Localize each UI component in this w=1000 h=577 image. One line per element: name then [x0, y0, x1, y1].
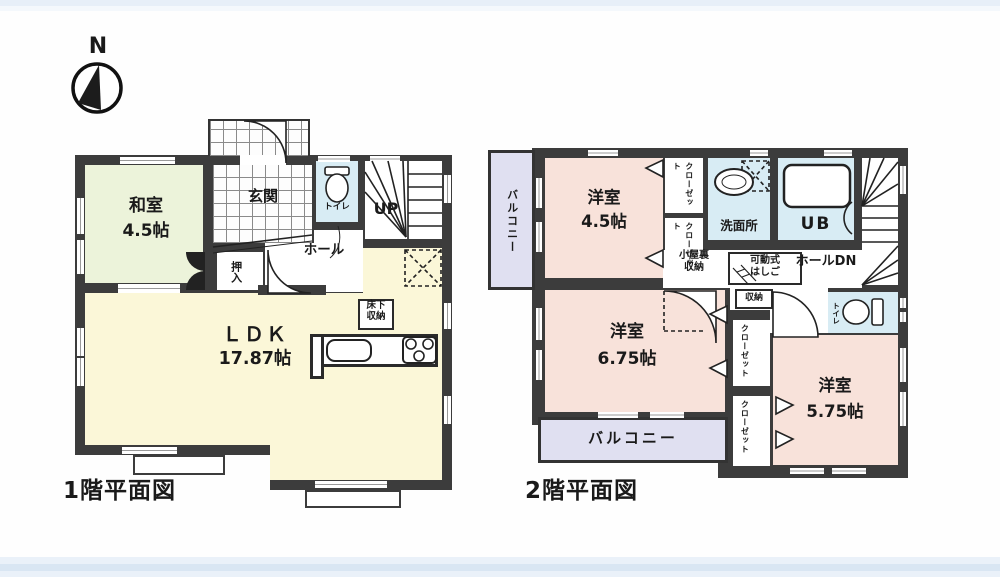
f1-genkan-label: 玄関: [228, 188, 298, 205]
f2-window-675-bottom-2: [650, 412, 684, 418]
f2-koyaura-line2: 収納: [684, 262, 704, 273]
f2-ub-label: UB: [794, 215, 838, 235]
f2-closet-c-col2: ゼット: [740, 351, 749, 378]
f1-entrance-porch: [208, 119, 310, 156]
f2-closet-a-label: クローゼット: [670, 162, 695, 210]
f1-kitchen-counter: [310, 334, 438, 367]
f2-window-575-bottom-1: [790, 468, 824, 474]
f2-window-left-1: [536, 178, 542, 208]
scan-band-top2: [0, 6, 1000, 11]
f1-stairs-up-label: UP: [367, 200, 405, 218]
scan-band-bottom2: [0, 564, 1000, 571]
f2-closet-c-label: クローゼット: [738, 324, 750, 382]
f2-room575-size: 5.75帖: [794, 403, 876, 422]
f1-ldk-name: ＬＤＫ: [190, 323, 320, 346]
f1-window-bottom-right: [315, 481, 387, 488]
f2-window-stairs-right: [900, 166, 906, 194]
f2-window-675-bottom-1: [598, 412, 638, 418]
f2-closet-a-col1: クロー: [685, 162, 694, 189]
f1-hall-label: ホール: [288, 243, 360, 259]
f2-shuno-label: 収納: [736, 293, 772, 303]
f2-senmenjo-label: 洗面所: [706, 219, 772, 233]
compass-north-label: N: [84, 34, 112, 59]
f2-balcony-left-label: バルコニー: [505, 162, 518, 280]
f2-window-left-4: [536, 350, 542, 380]
f1-toilet: [316, 161, 358, 222]
floorplan-canvas: N 床下 収納 和室 4.5帖 玄関 押入 トイレ ホール UP ＬＤＫ 17.…: [0, 0, 1000, 577]
scan-band-bottom3: [0, 571, 1000, 577]
f1-hall-ldk-wall: [258, 285, 326, 295]
f2-koyaura-label: 小屋裏 収納: [663, 250, 725, 273]
f1-washitsu-name: 和室: [96, 197, 196, 217]
f1-window-right-3: [444, 396, 451, 424]
f1-ldk-under-stairs: [363, 248, 442, 293]
f2-window-left-2: [536, 222, 542, 252]
f1-ldk-lower: [270, 445, 442, 480]
f2-title: 2階平面図: [525, 478, 695, 504]
f2-window-top-room45: [588, 150, 618, 156]
f2-balcony-bottom-label: バルコニー: [560, 430, 706, 447]
f1-yukashita-line1: 床下: [366, 300, 385, 311]
f1-window-right-2: [444, 303, 451, 329]
f1-window-bottom-left: [122, 447, 177, 454]
f1-window-right-1: [444, 175, 451, 203]
f1-window-left-2: [77, 240, 84, 274]
scan-band-bottom1: [0, 557, 1000, 564]
f1-window-top-toilet: [318, 156, 350, 162]
f1-bay-window-left: [133, 455, 225, 475]
f2-window-toilet-right-1: [900, 298, 906, 308]
f2-closet-d-col2: ゼット: [740, 427, 749, 454]
f2-hashigo-line1: 可動式: [750, 255, 780, 266]
f2-closet-c-col1: クロー: [740, 324, 749, 351]
f2-room675-name: 洋室: [585, 323, 669, 343]
f1-window-top-washitsu: [120, 157, 175, 164]
f1-window-left-3: [77, 328, 84, 356]
f2-window-575-right-2: [900, 392, 906, 426]
f2-koyaura-line1: 小屋裏: [679, 250, 709, 261]
f2-room45-name: 洋室: [574, 189, 634, 208]
f2-window-left-3: [536, 308, 542, 340]
f2-room575: [773, 335, 898, 465]
f2-room675-size: 6.75帖: [577, 350, 677, 370]
f2-window-toilet-right-2: [900, 312, 906, 322]
f2-closet-d-col1: クロー: [740, 400, 749, 427]
f1-washitsu-size: 4.5帖: [92, 222, 200, 242]
f2-closet-d-label: クローゼット: [738, 400, 750, 462]
f1-yukashita-label: 床下 収納: [359, 301, 393, 323]
f1-title: 1階平面図: [63, 478, 233, 504]
f1-window-top-stairs: [370, 156, 400, 162]
f1-window-left-1: [77, 198, 84, 234]
f2-window-top-ub: [824, 150, 852, 156]
f2-window-575-right-1: [900, 348, 906, 382]
f1-opening-washitsu-ldk: [118, 284, 180, 293]
f1-yukashita-line2: 収納: [366, 311, 385, 322]
f1-ldk-size: 17.87帖: [190, 349, 320, 369]
f1-window-left-4: [77, 358, 84, 386]
f1-oshiire-label: 押入: [229, 254, 242, 290]
f2-window-575-bottom-2: [832, 468, 866, 474]
f1-bay-window-right: [305, 490, 401, 508]
f2-hall-doorway: [770, 288, 828, 333]
f2-room45-size: 4.5帖: [566, 213, 642, 232]
f1-toilet-label: トイレ: [316, 203, 358, 213]
f2-hashigo-line2: はしご: [750, 267, 780, 278]
f2-staircase: [862, 158, 898, 285]
f2-room575-name: 洋室: [804, 377, 866, 396]
f2-window-top-senmenjo: [750, 150, 768, 156]
f2-toilet-label: トイレ: [831, 296, 840, 330]
f2-hall-dn-label: ホールDN: [789, 255, 863, 270]
f2-closet-b-col1: クロー: [685, 222, 694, 249]
